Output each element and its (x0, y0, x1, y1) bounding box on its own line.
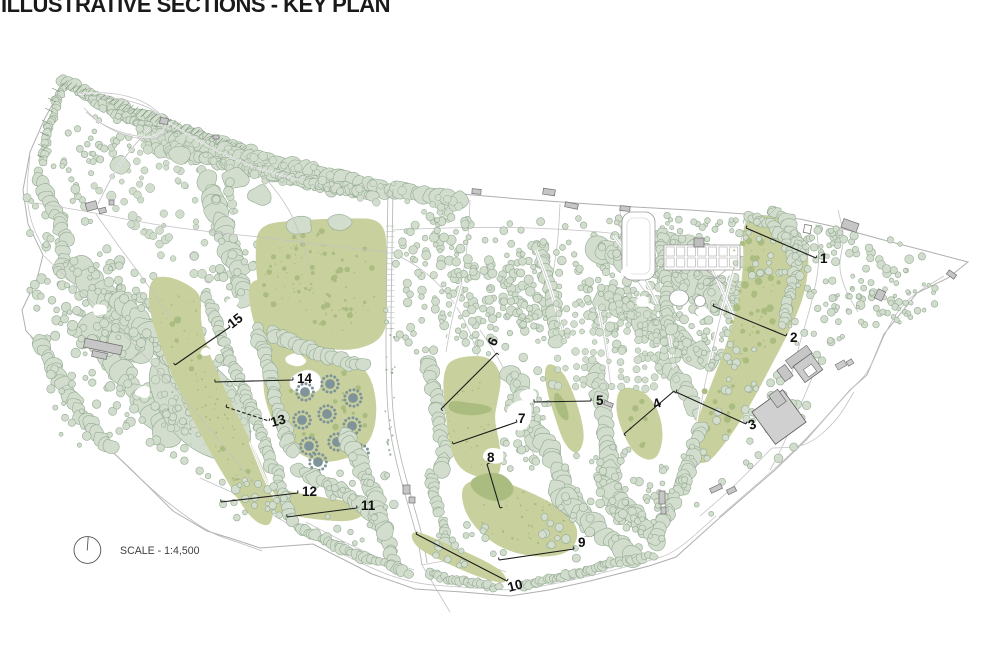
svg-text:SCALE - 1:4,500: SCALE - 1:4,500 (120, 545, 200, 557)
svg-text:14: 14 (297, 371, 313, 386)
svg-text:11: 11 (361, 498, 376, 513)
svg-text:9: 9 (578, 535, 586, 550)
svg-text:ILLUSTRATIVE SECTIONS - KEY PL: ILLUSTRATIVE SECTIONS - KEY PLAN (1, 0, 390, 17)
svg-text:1: 1 (820, 251, 828, 266)
svg-text:8: 8 (487, 450, 495, 465)
svg-text:2: 2 (790, 330, 798, 345)
svg-text:7: 7 (518, 411, 526, 426)
svg-text:5: 5 (596, 393, 604, 408)
svg-text:12: 12 (302, 484, 317, 499)
